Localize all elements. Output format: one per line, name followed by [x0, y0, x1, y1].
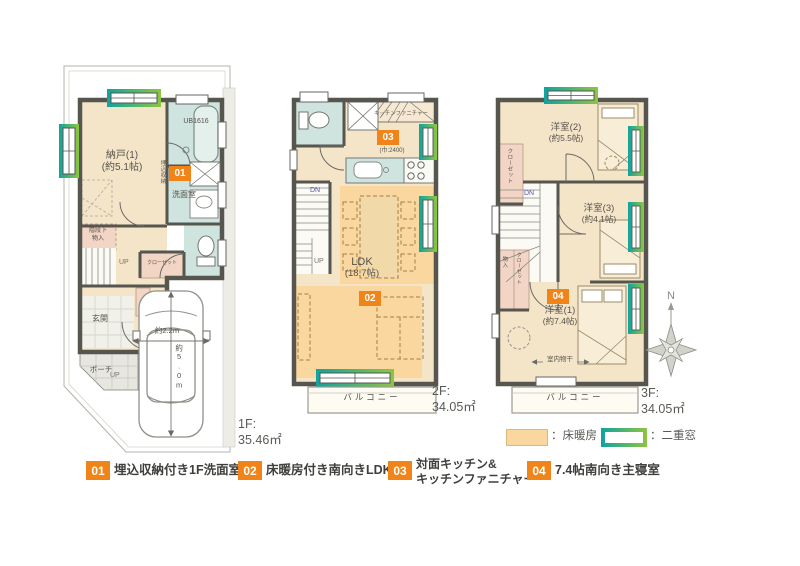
note-badge-02: 02 — [238, 461, 262, 480]
floor2-plan — [290, 92, 437, 413]
room-label-ub: UB1616 — [183, 118, 208, 126]
car — [133, 291, 210, 437]
floor2-area-label: 2F:34.05㎡ — [432, 383, 476, 415]
room-label-senmen: 洗面室 — [172, 190, 196, 199]
plan-badge-03: 03 — [377, 130, 399, 145]
dim-car-depth: 約5.0m — [174, 344, 183, 390]
note-text-04: 7.4帖南向き主寝室 — [555, 463, 660, 478]
label-up-porch: UP — [110, 372, 120, 380]
bed-yoshitsu1 — [578, 286, 626, 364]
room-label-yoshitsu1: 洋室(1)(約7.4帖) — [543, 306, 577, 327]
room-label-yoshitsu2: 洋室(2)(約5.5帖) — [549, 123, 583, 144]
umekomi-storage-box — [190, 162, 220, 186]
label-dn-3f: DN — [524, 190, 534, 198]
double-window-3f-right2 — [628, 202, 644, 252]
note-text-02: 床暖房付き南向きLDK — [266, 463, 392, 478]
label-umekomi-shunou: 埋込収納 — [159, 160, 165, 184]
label-kitchen-width: (巾:2400) — [379, 148, 404, 155]
room-label-porch: ポーチ — [90, 366, 113, 375]
label-balcony-2f: バルコニー — [343, 393, 400, 403]
note-text-03: 対面キッチン&キッチンファニチャー — [416, 457, 536, 486]
compass-rose — [646, 302, 696, 376]
note-badge-03: 03 — [388, 461, 412, 480]
toilet-1f — [197, 236, 215, 266]
room-label-nando: 納戸(1)(約5.1帖) — [102, 150, 143, 173]
plan-badge-04: 04 — [547, 289, 569, 304]
double-window-3f-right3 — [628, 284, 644, 334]
label-closet-3f-lower: クローゼット — [515, 252, 521, 285]
label-kaidanshita: 階段下物入 — [89, 228, 107, 243]
legend-label-double-window: ：二重窓 — [650, 430, 696, 443]
compass-north-label: N — [667, 290, 675, 303]
double-window-2f-bottom — [316, 369, 394, 387]
double-window-3f-right1 — [628, 126, 644, 176]
room-label-ldk: LDK(18.7帖) — [345, 256, 379, 280]
legend-swatch-floor-heating — [506, 429, 548, 446]
label-closet-1f: クローゼット — [147, 261, 177, 267]
note-text-01: 埋込収納付き1F洗面室 — [114, 463, 241, 478]
label-kitchen-furniture: キッチンファニチャー — [374, 111, 428, 117]
label-up-2f: UP — [314, 258, 324, 266]
double-window-1f-left — [59, 124, 79, 178]
double-window-1f-top — [107, 89, 161, 107]
label-dn-2f: DN — [310, 187, 320, 195]
double-window-3f-top — [544, 87, 598, 104]
label-drying: 室内物干 — [547, 356, 573, 363]
label-closet-3f-upper: クローゼット — [506, 148, 512, 184]
room-label-genkan: 玄関 — [92, 314, 108, 323]
label-balcony-3f: バルコニー — [546, 393, 603, 403]
floor3-area-label: 3F:34.05㎡ — [641, 385, 685, 417]
legend-swatch-double-window — [601, 428, 647, 447]
toilet-2f — [299, 112, 329, 129]
legend-label-floor-heating: ：床暖房 — [551, 430, 597, 443]
label-up-stairs-1f: UP — [119, 259, 129, 267]
double-window-2f-right1 — [419, 124, 437, 160]
floor1-area-label: 1F:35.46㎡ — [238, 416, 282, 448]
label-monoire: 物入 — [501, 256, 507, 268]
double-window-2f-right2 — [419, 196, 437, 252]
plan-badge-01: 01 — [169, 166, 191, 181]
dim-car-width: 約2.2m — [155, 327, 179, 336]
note-badge-01: 01 — [86, 461, 110, 480]
room-label-yoshitsu3: 洋室(3)(約4.1帖) — [582, 204, 616, 225]
note-badge-04: 04 — [527, 461, 551, 480]
floorplan-page: 納戸(1)(約5.1帖) UB1616 埋込収納 01 洗面室 階段下物入 クロ… — [0, 0, 800, 566]
plan-badge-02: 02 — [359, 291, 381, 306]
floorplan-canvas — [0, 0, 800, 566]
